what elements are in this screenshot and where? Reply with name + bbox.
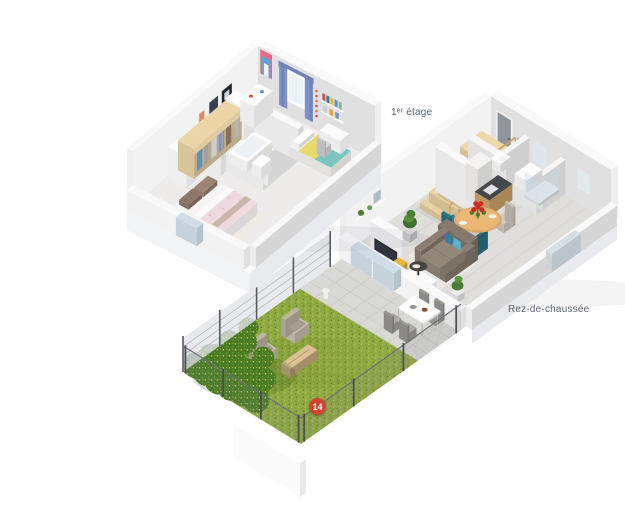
- lot-number-marker[interactable]: 14: [309, 398, 326, 415]
- ground-floor-label: Rez-de-chaussée: [508, 304, 589, 315]
- first-floor-label: 1ᵉʳ étage: [391, 107, 432, 118]
- plan-3d-render: [0, 0, 625, 525]
- floor-plan-canvas: 1ᵉʳ étage Rez-de-chaussée 14: [0, 0, 625, 525]
